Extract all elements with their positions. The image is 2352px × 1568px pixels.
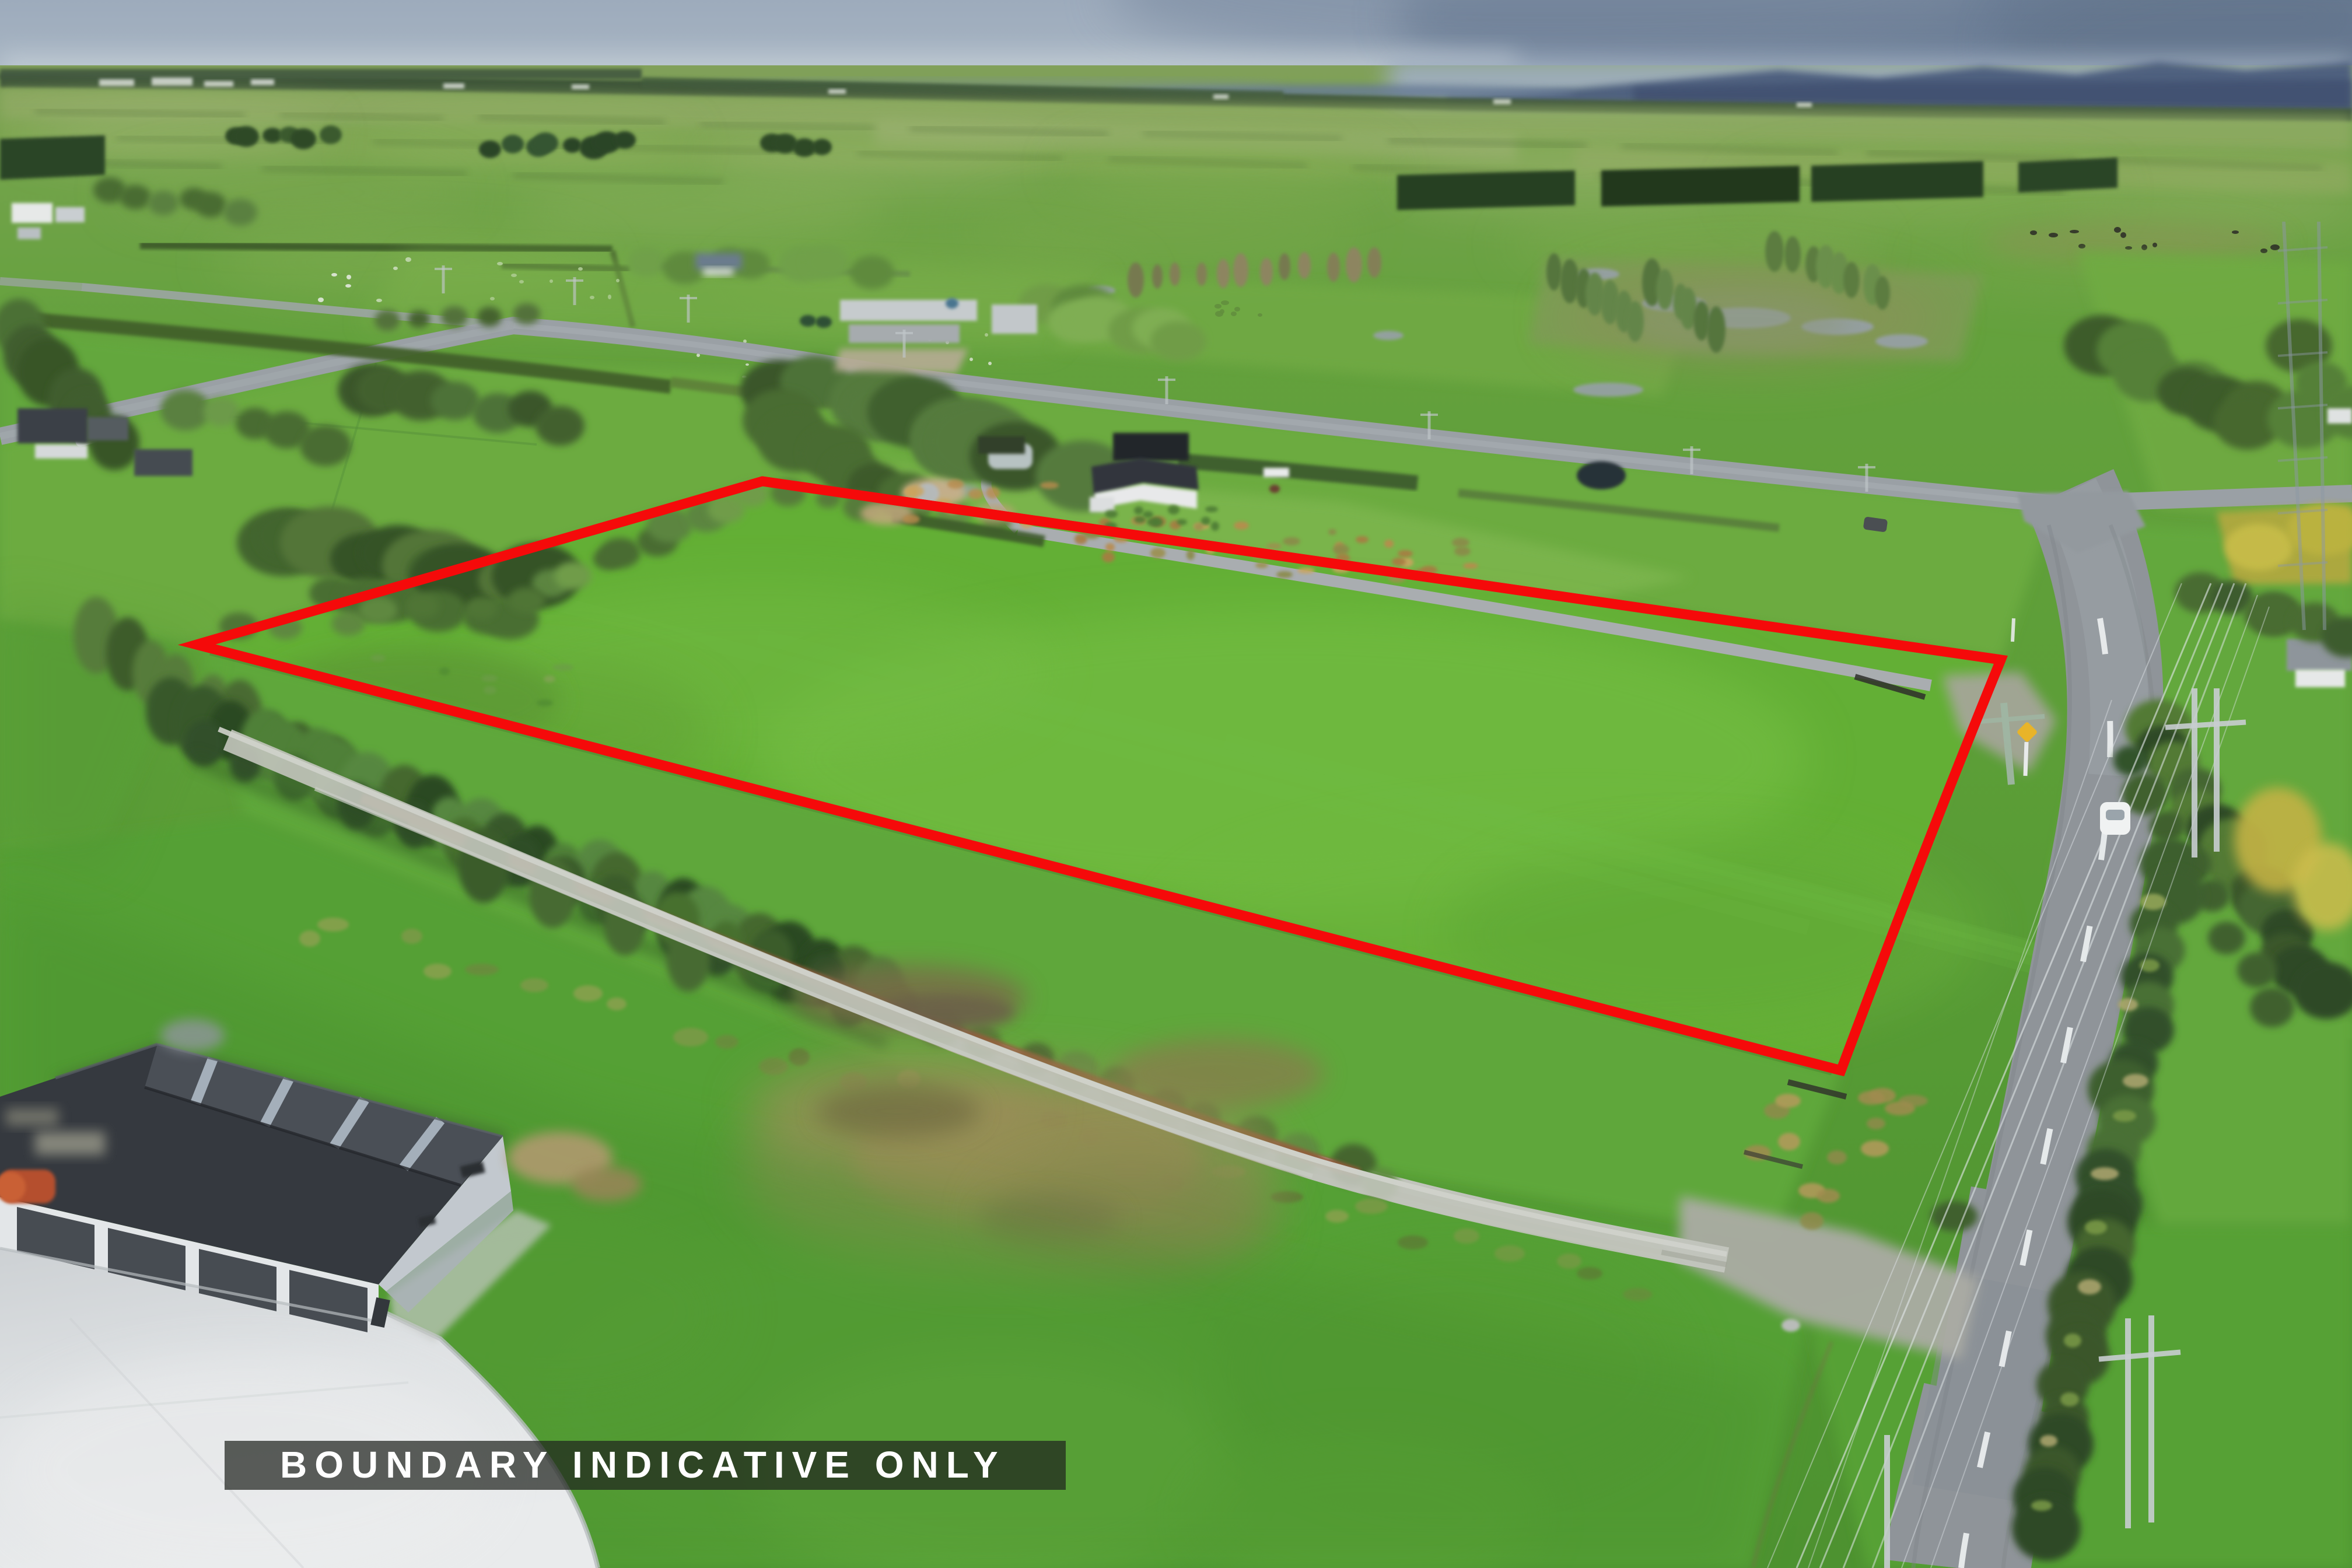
svg-text:BOUNDARY INDICATIVE ONLY: BOUNDARY INDICATIVE ONLY [280, 1444, 1006, 1486]
